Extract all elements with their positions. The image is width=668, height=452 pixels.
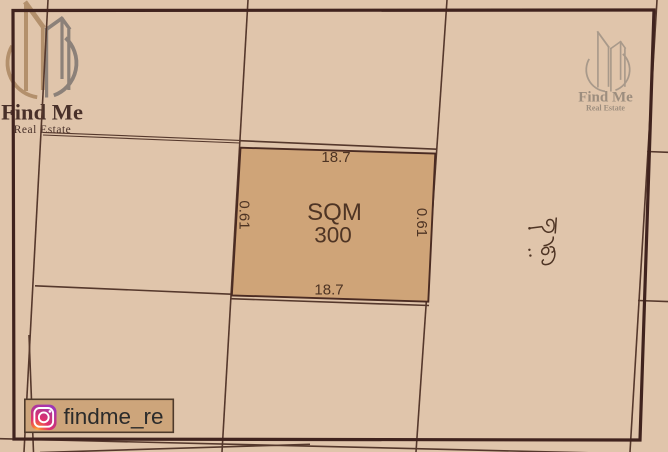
svg-text:findme_re: findme_re xyxy=(64,404,164,429)
svg-text:Real Estate: Real Estate xyxy=(586,104,625,113)
svg-text:300: 300 xyxy=(314,223,352,248)
svg-text:Real Estate: Real Estate xyxy=(14,124,72,136)
svg-text:18.7: 18.7 xyxy=(314,282,343,299)
svg-text:18.7: 18.7 xyxy=(321,149,350,166)
svg-text:0.61: 0.61 xyxy=(236,200,253,229)
svg-text:0.61: 0.61 xyxy=(413,208,430,237)
